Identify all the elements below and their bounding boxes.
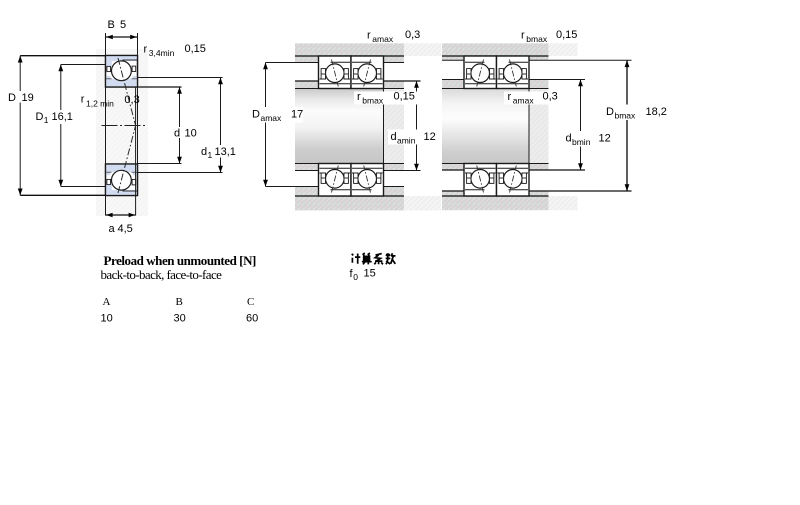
svg-text:amin: amin [397,136,416,146]
svg-text:r: r [81,94,85,106]
svg-text:C: C [247,296,254,308]
svg-text:0,3: 0,3 [543,91,558,103]
svg-text:0: 0 [353,272,358,282]
svg-text:10: 10 [185,128,197,140]
svg-text:30: 30 [174,313,186,325]
svg-text:B: B [108,19,115,31]
svg-text:D: D [36,111,44,123]
svg-text:4,5: 4,5 [118,223,133,235]
svg-text:12: 12 [599,133,611,145]
svg-text:amax: amax [372,34,394,44]
svg-text:15: 15 [364,268,376,280]
svg-text:5: 5 [120,19,126,31]
svg-text:bmax: bmax [615,111,637,121]
svg-text:B: B [176,296,183,308]
svg-text:back-to-back, face-to-face: back-to-back, face-to-face [101,267,223,282]
svg-text:r: r [508,91,512,103]
svg-text:d: d [391,131,397,143]
svg-text:A: A [103,296,111,308]
svg-text:1: 1 [208,150,213,160]
svg-text:r: r [357,91,361,103]
svg-text:13,1: 13,1 [215,146,236,158]
svg-text:a: a [109,223,116,235]
svg-text:0,15: 0,15 [185,43,206,55]
svg-text:r: r [521,30,525,42]
svg-text:d: d [174,128,180,140]
svg-text:d: d [201,146,207,158]
svg-text:D: D [606,106,614,118]
svg-text:0,15: 0,15 [556,29,577,41]
svg-text:bmax: bmax [526,34,548,44]
svg-text:amax: amax [513,96,535,106]
svg-text:D: D [8,92,16,104]
svg-text:D: D [252,109,260,121]
svg-text:10: 10 [101,313,113,325]
svg-text:Preload when unmounted [N]: Preload when unmounted [N] [104,253,257,268]
svg-text:3,4min: 3,4min [149,48,175,58]
svg-text:r: r [144,44,148,56]
svg-text:1: 1 [44,115,49,125]
svg-text:60: 60 [246,313,258,325]
svg-text:18,2: 18,2 [646,106,667,118]
svg-text:1,2 min: 1,2 min [86,98,114,108]
svg-text:d: d [566,133,572,145]
svg-text:amax: amax [261,113,283,123]
svg-text:19: 19 [22,92,34,104]
svg-text:bmin: bmin [572,137,591,147]
svg-text:0,3: 0,3 [124,94,139,106]
svg-text:bmax: bmax [362,96,384,106]
svg-text:17: 17 [291,109,303,121]
svg-text:16,1: 16,1 [52,111,73,123]
svg-text:r: r [367,30,371,42]
svg-text:12: 12 [424,131,436,143]
svg-text:0,3: 0,3 [405,29,420,41]
svg-text:0,15: 0,15 [394,91,415,103]
